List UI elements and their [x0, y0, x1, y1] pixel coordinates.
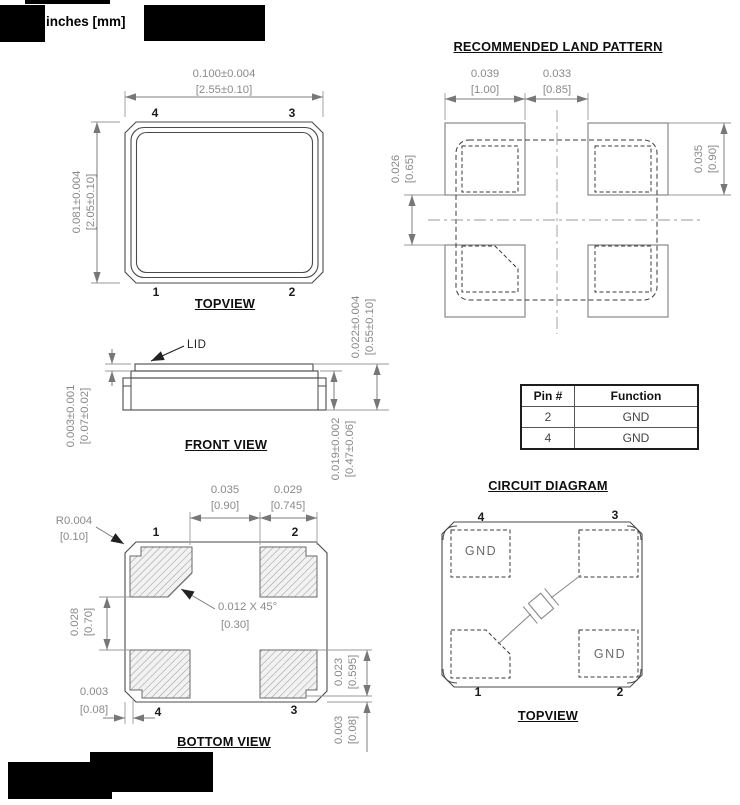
lid-label: LID: [187, 338, 206, 352]
top-view-title: TOPVIEW: [195, 297, 255, 311]
land-pattern-component-outline: [456, 140, 657, 300]
top-view-pin-2: 2: [289, 285, 296, 299]
pin-column-header: Pin #: [521, 385, 575, 407]
front-view-package: [123, 364, 326, 410]
table-header-row: Pin # Function: [521, 385, 698, 407]
redaction-box-footer-right: [90, 752, 213, 792]
bottom-view-pad-gap-mm: [0.90]: [211, 499, 239, 513]
top-view-pin-1: 1: [153, 285, 160, 299]
bottom-margin-dim: 0.003 [0.08]: [332, 716, 360, 744]
top-view-pin-3: 3: [289, 106, 296, 120]
bottom-view-pin-1: 1: [153, 525, 160, 539]
table-row: 4 GND: [521, 428, 698, 450]
land-pattern-pad-width-inches: 0.039: [471, 67, 499, 81]
bottom-view-pin-4: 4: [155, 705, 162, 719]
pin-function-cell: GND: [575, 407, 699, 428]
circuit-pin-1: 1: [475, 685, 482, 699]
bottom-view-pad-width-mm: [0.745]: [271, 499, 306, 513]
top-view-package-outline: [125, 122, 323, 283]
top-view-pin-4: 4: [152, 106, 159, 120]
front-view-title: FRONT VIEW: [185, 438, 267, 452]
front-view-total-height-dim: 0.022±0.004 [0.55±0.10]: [349, 296, 377, 359]
circuit-pin-2: 2: [617, 685, 624, 699]
corner-radius-mm: [0.10]: [60, 530, 88, 544]
pad-4: [130, 650, 190, 698]
land-pattern-vgap-dim: 0.026 [0.65]: [389, 155, 417, 183]
redaction-box-header: [144, 5, 265, 41]
top-view-height-dim: 0.081±0.004 [2.05±0.10]: [70, 171, 98, 234]
land-pattern-gap-mm: [0.85]: [543, 83, 571, 97]
redaction-box-logo: [0, 5, 45, 42]
pin-number-cell: 4: [521, 428, 575, 450]
top-view-width-dim-inches: 0.100±0.004: [193, 67, 256, 81]
corner-radius-leader-line: [96, 527, 124, 544]
front-view-body-height-dim: 0.019±0.002 [0.47±0.06]: [329, 418, 357, 481]
top-view-width-dim-mm: [2.55±0.10]: [196, 83, 252, 97]
circuit-pin-3: 3: [612, 508, 619, 522]
circuit-diagram-title: CIRCUIT DIAGRAM: [488, 479, 608, 493]
table-row: 2 GND: [521, 407, 698, 428]
chamfer-note-mm: [0.30]: [221, 618, 249, 632]
chamfer-note-inches: 0.012 X 45°: [218, 600, 277, 614]
redaction-bar-top: [25, 0, 110, 4]
pin-function-cell: GND: [575, 428, 699, 450]
land-pattern-title: RECOMMENDED LAND PATTERN: [453, 40, 662, 54]
land-pattern-dimension-lines: [404, 93, 731, 245]
bottom-view-pad-height-dim: 0.023 [0.595]: [332, 655, 360, 690]
function-column-header: Function: [575, 385, 699, 407]
bottom-view-pad-width-inches: 0.029: [274, 483, 302, 497]
pad-3: [260, 650, 317, 698]
land-pattern-pad-height-dim: 0.035 [0.90]: [692, 145, 720, 173]
edge-margin-inches: 0.003: [80, 685, 108, 699]
circuit-view-label: TOPVIEW: [518, 709, 578, 723]
gnd-label-pad4: GND: [465, 544, 497, 558]
circuit-pin-4: 4: [478, 510, 485, 524]
bottom-view-pad-gap-inches: 0.035: [211, 483, 239, 497]
gnd-label-pad2: GND: [594, 647, 626, 661]
front-view-lid-thickness-dim: 0.003±0.001 [0.07±0.02]: [64, 385, 92, 448]
pin-function-table: Pin # Function 2 GND 4 GND: [520, 384, 699, 450]
bottom-view-pin-3: 3: [291, 703, 298, 717]
bottom-view-title: BOTTOM VIEW: [177, 735, 271, 749]
bottom-view-pin-2: 2: [292, 525, 299, 539]
crystal-symbol: [498, 575, 581, 644]
land-pattern-pad-width-mm: [1.00]: [471, 83, 499, 97]
pin-number-cell: 2: [521, 407, 575, 428]
bottom-view-pad-vgap-dim: 0.028 [0.70]: [68, 608, 96, 636]
edge-margin-mm: [0.08]: [80, 703, 108, 717]
datasheet-drawing-page: inches [mm] 0.100±0.004 [2.55±0.10] 0.08…: [0, 0, 740, 805]
corner-radius-inches: R0.004: [56, 514, 92, 528]
front-view-dimension-lines: [105, 349, 389, 410]
chamfer-leader-line: [181, 589, 215, 609]
pad-2: [260, 547, 317, 597]
land-pattern-gap-inches: 0.033: [543, 67, 571, 81]
units-note: inches [mm]: [46, 15, 126, 29]
lid-leader-line: [151, 346, 184, 361]
